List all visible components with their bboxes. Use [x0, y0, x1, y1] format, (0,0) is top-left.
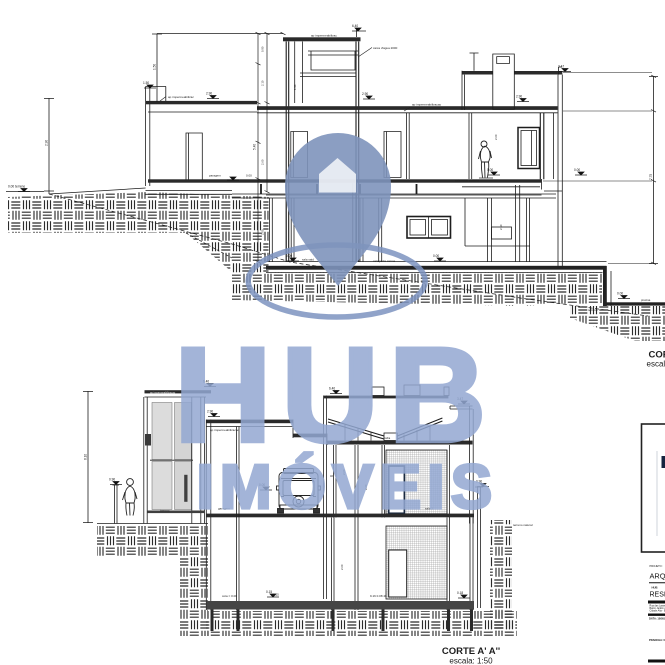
- svg-text:PROJETO:: PROJETO:: [650, 564, 663, 568]
- svg-text:terreno: terreno: [588, 308, 598, 312]
- svg-text:HUB: HUB: [175, 321, 497, 470]
- svg-text:2.10: 2.10: [261, 80, 265, 86]
- svg-text:-0.15: -0.15: [272, 593, 279, 597]
- svg-text:0.00 terreno: 0.00 terreno: [8, 185, 25, 189]
- svg-text:cota = 0.00: cota = 0.00: [222, 594, 237, 598]
- svg-text:cala jarda carma: cala jarda carma: [373, 259, 396, 263]
- svg-text:ARQUITETURA: ARQUITETURA: [650, 572, 665, 581]
- svg-text:2.90: 2.90: [45, 140, 49, 146]
- svg-text:0.00: 0.00: [574, 168, 580, 172]
- svg-text:3.47: 3.47: [558, 65, 564, 69]
- svg-text:HUB: HUB: [652, 585, 658, 589]
- svg-text:0.90: 0.90: [109, 478, 115, 482]
- svg-text:6.40: 6.40: [352, 24, 358, 28]
- svg-text:0.18: 0.18: [457, 591, 463, 595]
- svg-text:0.00: 0.00: [286, 254, 292, 258]
- svg-text:IMÓVEIS: IMÓVEIS: [197, 453, 499, 522]
- svg-text:9.16 0.08 46: 9.16 0.08 46: [370, 594, 387, 598]
- svg-text:DATA: 10/05/2023 REV: DATA: 10/05/2023 REV: [649, 617, 665, 621]
- svg-text:ap impermeabilizac: ap impermeabilizac: [168, 95, 194, 99]
- svg-text:paragem: paragem: [209, 174, 221, 178]
- svg-text:2.60: 2.60: [261, 159, 265, 165]
- svg-text:sala said: sala said: [302, 258, 314, 262]
- svg-text:terreno natural: terreno natural: [513, 523, 533, 527]
- svg-text:PRANCHA: 03/07 ESC: PRANCHA: 03/07 ESC: [649, 638, 665, 642]
- svg-text:0.90: 0.90: [261, 46, 265, 52]
- svg-text:ap impermeabilizacao: ap impermeabilizacao: [412, 102, 442, 106]
- svg-text:2.60: 2.60: [261, 229, 265, 235]
- svg-text:sala estar cozinha: sala estar cozinha: [455, 179, 480, 183]
- svg-text:escala: 1:50: escala: 1:50: [647, 360, 665, 369]
- svg-text:piscina: piscina: [641, 298, 651, 302]
- svg-text:RESIDENCIAL: RESIDENCIAL: [650, 592, 665, 599]
- svg-text:8.10: 8.10: [84, 454, 88, 460]
- svg-text:CORTE A' A'': CORTE A' A'': [442, 646, 500, 657]
- svg-text:2.60: 2.60: [499, 224, 503, 230]
- svg-text:Cidade Alta - Estado XY: Cidade Alta - Estado XY: [650, 610, 665, 613]
- svg-text:0.00: 0.00: [246, 174, 252, 178]
- svg-text:2.90: 2.90: [206, 92, 212, 96]
- svg-text:2.60: 2.60: [494, 134, 498, 140]
- svg-text:1.90: 1.90: [293, 84, 297, 90]
- svg-text:0.00: 0.00: [617, 292, 623, 296]
- svg-text:7.75: 7.75: [649, 174, 653, 180]
- svg-text:1.50: 1.50: [153, 64, 157, 70]
- svg-text:2.90: 2.90: [516, 95, 522, 99]
- svg-text:0.00: 0.00: [487, 168, 493, 172]
- svg-text:ap impermeabilizac: ap impermeabilizac: [311, 33, 337, 37]
- svg-text:0.00: 0.00: [433, 254, 439, 258]
- svg-text:2.90: 2.90: [362, 92, 368, 96]
- svg-text:5.40: 5.40: [253, 144, 257, 150]
- svg-text:ap impermeabilizacao: ap impermeabilizacao: [150, 391, 176, 395]
- svg-text:terreno: terreno: [160, 509, 170, 513]
- svg-text:1.50: 1.50: [143, 81, 149, 85]
- svg-text:caixa d'água 2000: caixa d'água 2000: [373, 46, 398, 50]
- svg-text:2.60: 2.60: [340, 564, 344, 570]
- svg-text:escala: 1:50: escala: 1:50: [449, 657, 493, 665]
